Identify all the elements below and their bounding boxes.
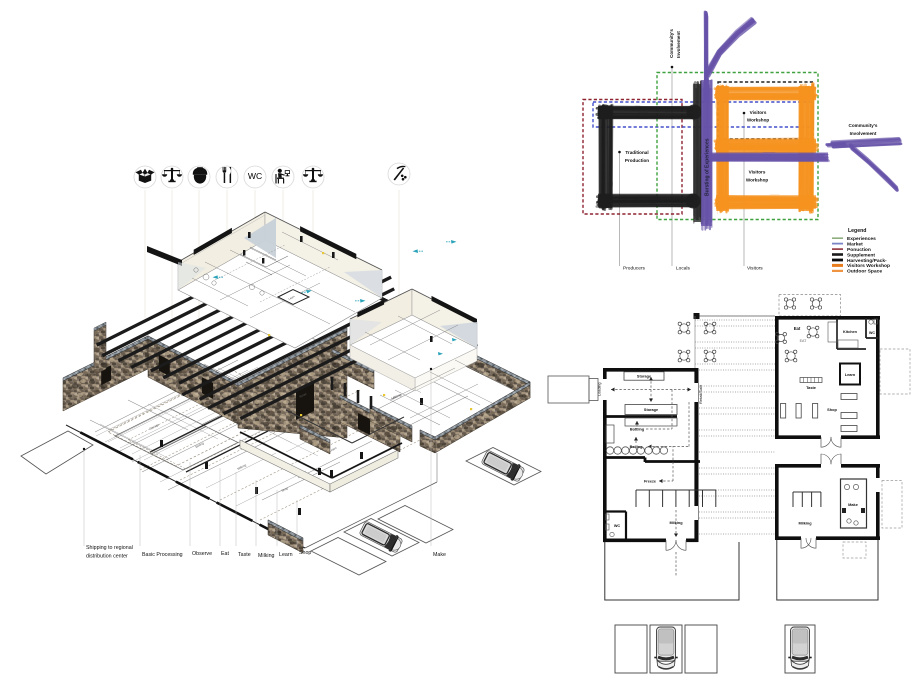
svg-text:Freeze: Freeze — [644, 480, 656, 484]
svg-text:Outdoor Space: Outdoor Space — [847, 269, 882, 275]
svg-text:Loading: Loading — [598, 382, 602, 396]
svg-text:Learn: Learn — [845, 372, 856, 377]
svg-text:Ponuction: Ponuction — [847, 247, 871, 253]
svg-text:Locals: Locals — [676, 266, 690, 272]
svg-text:Production: Production — [625, 158, 649, 163]
svg-text:Shop: Shop — [299, 550, 311, 556]
svg-text:Involvement: Involvement — [676, 31, 681, 58]
svg-text:Kitchen: Kitchen — [843, 330, 858, 334]
svg-text:Supplement: Supplement — [847, 252, 875, 258]
svg-text:Visitors: Visitors — [749, 170, 766, 175]
svg-text:Involvement: Involvement — [850, 131, 877, 136]
svg-text:Shipping to regional: Shipping to regional — [86, 545, 133, 551]
svg-text:Make: Make — [433, 552, 446, 558]
svg-text:EAT: EAT — [800, 339, 808, 343]
svg-text:Storage: Storage — [644, 408, 658, 412]
svg-text:Basic Processing: Basic Processing — [142, 552, 183, 558]
svg-text:Visitors Workshop: Visitors Workshop — [847, 263, 890, 269]
svg-text:Eat: Eat — [794, 326, 801, 331]
svg-text:Traditional: Traditional — [625, 150, 648, 155]
svg-text:Taste: Taste — [238, 552, 251, 558]
svg-text:Milking: Milking — [258, 553, 275, 559]
svg-text:distribution center: distribution center — [86, 554, 128, 560]
svg-text:Observe: Observe — [192, 551, 212, 557]
svg-text:WC: WC — [614, 524, 621, 528]
svg-text:Bottling: Bottling — [630, 428, 645, 432]
svg-text:Producers: Producers — [623, 266, 645, 272]
svg-text:WC: WC — [869, 331, 875, 335]
svg-text:Visitors: Visitors — [750, 110, 767, 115]
svg-text:Learn: Learn — [279, 552, 293, 558]
svg-text:Shop: Shop — [827, 407, 837, 412]
svg-text:Eat: Eat — [221, 551, 229, 557]
svg-text:Workshop: Workshop — [746, 178, 769, 183]
svg-text:Harvesting/Pack-: Harvesting/Pack- — [847, 258, 887, 264]
svg-text:Legend: Legend — [848, 228, 866, 234]
svg-text:Experiences: Experiences — [847, 236, 876, 242]
svg-text:Visitors: Visitors — [747, 266, 763, 272]
svg-text:Bursting of Experiences: Bursting of Experiences — [705, 138, 711, 196]
svg-text:Storage: Storage — [637, 375, 651, 379]
svg-text:Community's: Community's — [849, 123, 878, 128]
svg-text:Taste: Taste — [806, 385, 817, 390]
svg-text:Market: Market — [847, 241, 863, 247]
svg-text:Milking: Milking — [798, 522, 812, 526]
svg-text:Community's: Community's — [669, 29, 674, 58]
svg-text:WC: WC — [248, 171, 262, 181]
svg-text:Make: Make — [848, 502, 859, 507]
svg-text:Workshop: Workshop — [747, 118, 770, 123]
